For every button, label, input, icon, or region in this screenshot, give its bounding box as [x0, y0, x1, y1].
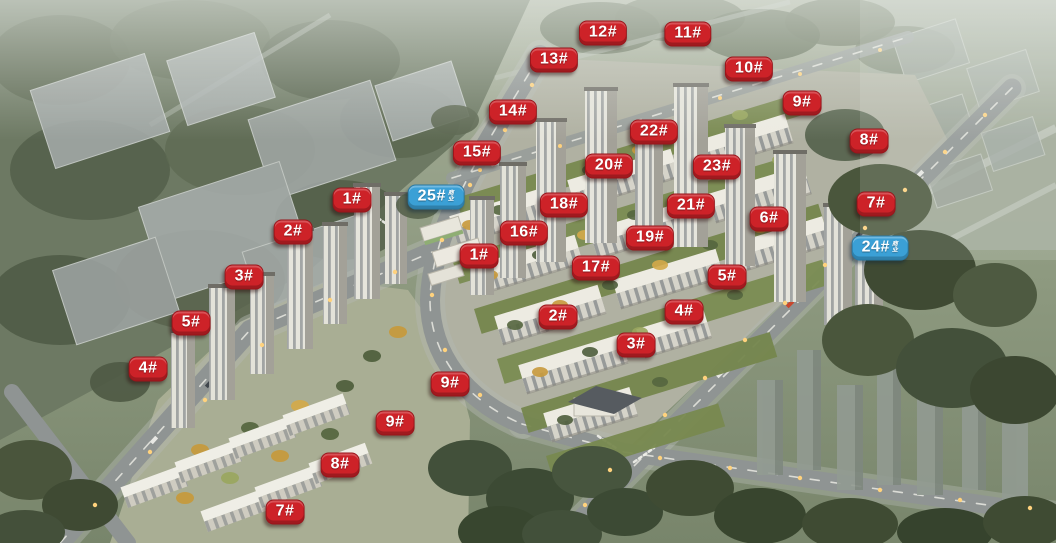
building-badge-4: 4# [129, 357, 168, 382]
building-badge-7: 7# [857, 192, 896, 217]
building-badge-9: 9# [431, 372, 470, 397]
building-badge-10: 10# [725, 57, 773, 82]
building-badge-22: 22# [630, 120, 678, 145]
badge-label: 3# [627, 337, 646, 353]
badge-label: 9# [793, 95, 812, 111]
building-badge-12: 12# [579, 21, 627, 46]
building-badge-8: 8# [850, 129, 889, 154]
badge-label: 12# [589, 25, 617, 41]
building-badge-25-commercial: 25#商业 [408, 185, 465, 210]
badge-label: 4# [675, 304, 694, 320]
badge-label: 10# [735, 61, 763, 77]
building-badge-2: 2# [274, 220, 313, 245]
badge-label: 19# [636, 230, 664, 246]
building-badge-20: 20# [585, 154, 633, 179]
badge-label: 14# [499, 104, 527, 120]
badge-label: 7# [867, 196, 886, 212]
building-badge-7: 7# [266, 500, 305, 525]
badge-label: 24# [862, 240, 890, 256]
building-badge-11: 11# [664, 22, 711, 47]
badge-label: 2# [284, 224, 303, 240]
building-badge-19: 19# [626, 226, 674, 251]
building-badge-3: 3# [225, 265, 264, 290]
badge-label: 5# [182, 315, 201, 331]
building-badge-3: 3# [617, 333, 656, 358]
badge-label: 23# [703, 159, 731, 175]
badge-label: 7# [276, 504, 295, 520]
aerial-site-plan: 12#11#13#10#9#14#22#8#15#20#23#25#商业1#7#… [0, 0, 1056, 543]
building-badge-layer: 12#11#13#10#9#14#22#8#15#20#23#25#商业1#7#… [0, 0, 1056, 543]
badge-label: 5# [718, 269, 737, 285]
badge-label: 25# [418, 189, 446, 205]
badge-label: 17# [582, 260, 610, 276]
badge-label: 9# [441, 376, 460, 392]
building-badge-15: 15# [453, 141, 501, 166]
building-badge-8: 8# [321, 453, 360, 478]
building-badge-18: 18# [540, 193, 588, 218]
commercial-tag: 商业 [448, 190, 455, 203]
building-badge-14: 14# [489, 100, 537, 125]
building-badge-21: 21# [667, 194, 715, 219]
building-badge-16: 16# [500, 221, 548, 246]
building-badge-2: 2# [539, 305, 578, 330]
badge-label: 8# [331, 457, 350, 473]
badge-label: 22# [640, 124, 668, 140]
badge-label: 15# [463, 145, 491, 161]
badge-label: 9# [386, 415, 405, 431]
building-badge-4: 4# [665, 300, 704, 325]
building-badge-9: 9# [376, 411, 415, 436]
building-badge-24-commercial: 24#商业 [852, 236, 909, 261]
badge-label: 16# [510, 225, 538, 241]
badge-label: 1# [343, 192, 362, 208]
badge-label: 6# [760, 211, 779, 227]
building-badge-23: 23# [693, 155, 741, 180]
badge-label: 21# [677, 198, 705, 214]
building-badge-1: 1# [460, 244, 499, 269]
badge-label: 11# [674, 26, 701, 42]
building-badge-17: 17# [572, 256, 620, 281]
badge-label: 20# [595, 158, 623, 174]
badge-label: 18# [550, 197, 578, 213]
building-badge-6: 6# [750, 207, 789, 232]
badge-label: 3# [235, 269, 254, 285]
badge-label: 8# [860, 133, 879, 149]
building-badge-5: 5# [708, 265, 747, 290]
building-badge-1: 1# [333, 188, 372, 213]
building-badge-5: 5# [172, 311, 211, 336]
building-badge-9: 9# [783, 91, 822, 116]
badge-label: 13# [540, 52, 568, 68]
badge-label: 4# [139, 361, 158, 377]
badge-label: 1# [470, 248, 489, 264]
commercial-tag: 商业 [892, 241, 899, 254]
building-badge-13: 13# [530, 48, 578, 73]
badge-label: 2# [549, 309, 568, 325]
